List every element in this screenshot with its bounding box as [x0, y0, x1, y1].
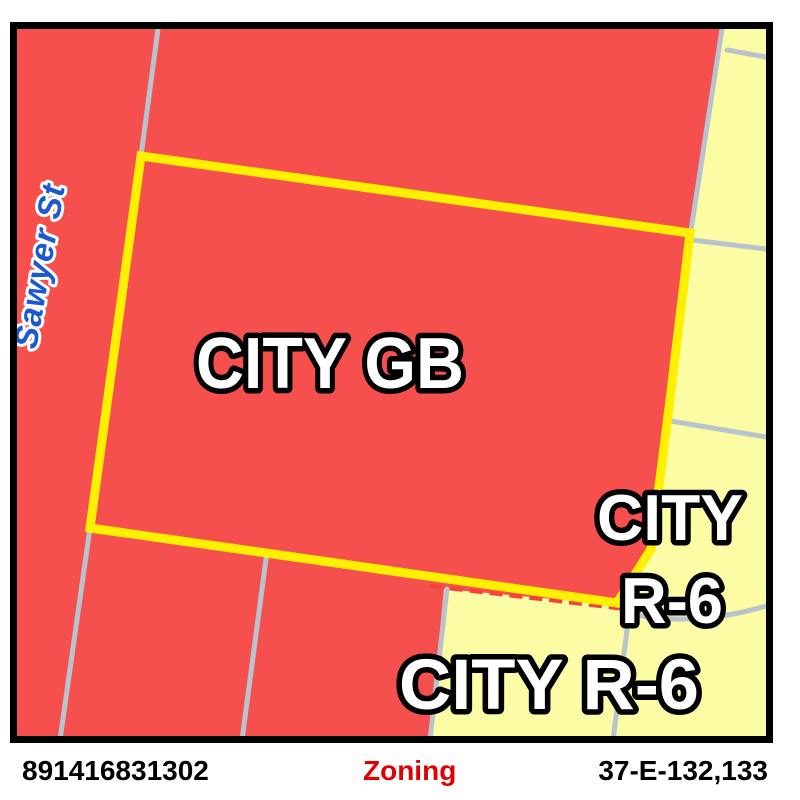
footer-bar: 891416831302 Zoning 37-E-132,133: [0, 743, 800, 800]
parcel-id-text: 891416831302: [22, 755, 209, 787]
zone-label-r6-right-line1: CITY: [597, 481, 743, 554]
map-viewport[interactable]: Sawyer St CITY GB CITY R-6 CITY R-6: [0, 0, 800, 743]
sheet-reference-text: 37-E-132,133: [598, 755, 768, 787]
zone-label-gb: CITY GB: [196, 324, 464, 404]
map-svg[interactable]: Sawyer St CITY GB CITY R-6 CITY R-6: [0, 0, 800, 743]
zone-label-r6-right-line2: R-6: [621, 564, 723, 637]
zone-label-r6-bottom: CITY R-6: [399, 646, 699, 725]
zoning-map-page: Sawyer St CITY GB CITY R-6 CITY R-6 8914…: [0, 0, 800, 800]
map-view-type-label: Zoning: [363, 755, 456, 787]
